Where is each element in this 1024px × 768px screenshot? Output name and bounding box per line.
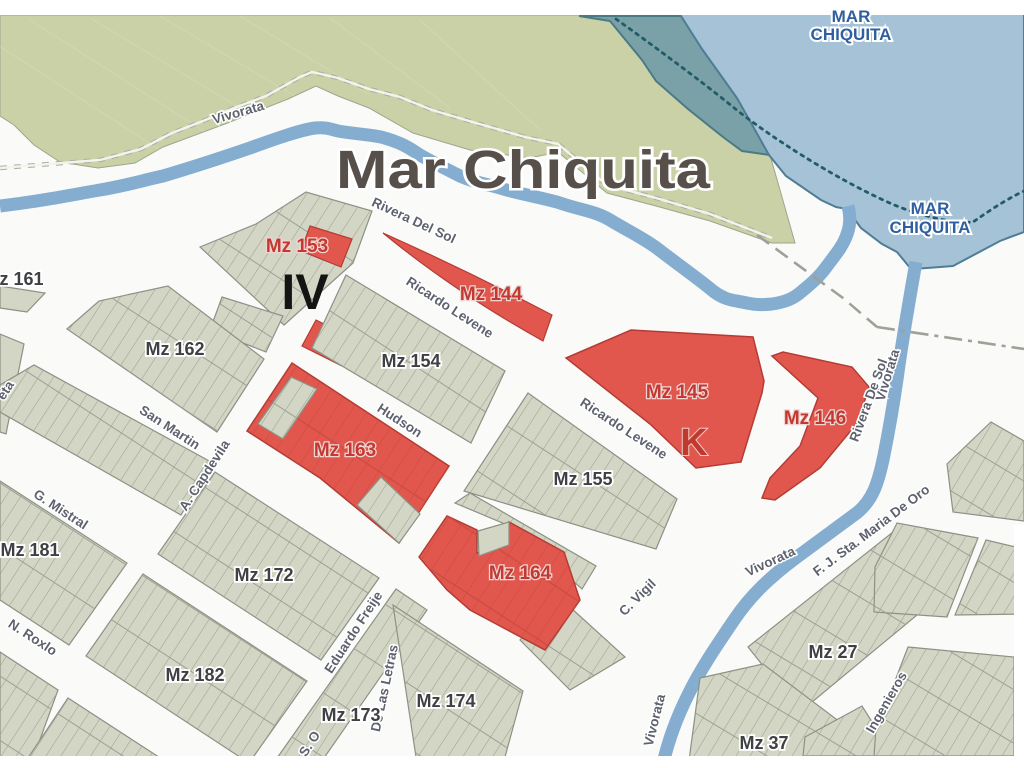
svg-text:IV: IV (281, 264, 329, 320)
svg-text:Mz 173: Mz 173 (321, 705, 380, 725)
svg-text:Mz 164: Mz 164 (489, 563, 552, 584)
svg-text:CHIQUITA: CHIQUITA (811, 25, 892, 44)
svg-text:Mz 163: Mz 163 (314, 440, 376, 461)
svg-text:Mz 145: Mz 145 (646, 382, 709, 403)
svg-text:K: K (680, 422, 708, 464)
svg-text:Mz 161: Mz 161 (0, 269, 44, 289)
svg-text:MAR: MAR (911, 199, 950, 218)
svg-text:Mz 162: Mz 162 (145, 339, 204, 359)
svg-text:Mz 153: Mz 153 (266, 236, 328, 257)
svg-text:Mz 37: Mz 37 (739, 733, 788, 753)
svg-text:Mz 155: Mz 155 (553, 469, 612, 489)
svg-text:Mz 146: Mz 146 (784, 408, 846, 429)
svg-text:Mar Chiquita: Mar Chiquita (336, 140, 711, 200)
svg-text:MAR: MAR (832, 7, 871, 26)
svg-text:Mz 154: Mz 154 (381, 351, 440, 371)
svg-text:Mz 27: Mz 27 (808, 642, 857, 662)
svg-text:Mz 182: Mz 182 (165, 665, 224, 685)
svg-text:CHIQUITA: CHIQUITA (890, 218, 971, 237)
svg-text:Mz 174: Mz 174 (416, 691, 475, 711)
svg-text:Mz 144: Mz 144 (460, 284, 523, 305)
svg-text:Mz 181: Mz 181 (0, 540, 59, 560)
svg-text:Mz 172: Mz 172 (234, 565, 293, 585)
